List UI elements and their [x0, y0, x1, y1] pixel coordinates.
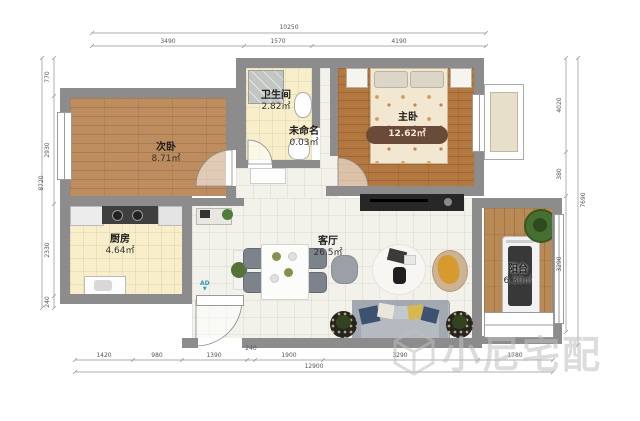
- sink-basin: [94, 280, 112, 291]
- stove[interactable]: [102, 206, 158, 224]
- side-tray: [404, 255, 416, 265]
- balcony-plant-center: [533, 218, 547, 232]
- nightstand-right[interactable]: [450, 68, 472, 88]
- wall-bathroom-bottom-a: [236, 160, 248, 168]
- entry-door-leaf[interactable]: [196, 295, 244, 306]
- bed-runner[interactable]: [366, 126, 448, 144]
- bathroom-door-arc: [248, 140, 272, 164]
- wall-living-right: [472, 198, 482, 348]
- wall-bottom-left-stub: [182, 338, 198, 348]
- washing-machine-top-line: [506, 240, 534, 243]
- wall-master-left: [330, 58, 338, 156]
- master-bedroom-door-arc: [338, 158, 368, 188]
- wall-secondary-right-lower: [226, 186, 236, 198]
- wall-bathroom-right: [312, 58, 320, 128]
- vanity-cabinet[interactable]: [250, 168, 286, 184]
- tv-screen: [370, 199, 428, 202]
- speaker: [444, 198, 452, 206]
- wall-bathroom-bottom-b: [272, 160, 320, 168]
- pouf[interactable]: [331, 255, 358, 284]
- entry-door-arc: [196, 300, 242, 346]
- toilet[interactable]: [288, 138, 310, 160]
- washbasin[interactable]: [294, 92, 312, 118]
- table-plant-1: [272, 252, 281, 261]
- wall-kitchen-bottom: [60, 294, 192, 304]
- bay-window-inner: [490, 92, 518, 152]
- shoe-cabinet-decor: [200, 210, 210, 218]
- table-plant-2: [284, 268, 293, 277]
- wall-secondary-top: [60, 88, 240, 98]
- kitchen-cabinet[interactable]: [158, 206, 184, 226]
- washing-machine-front: [508, 246, 532, 306]
- accent-chair[interactable]: [393, 267, 406, 284]
- balcony-sill-window: [484, 312, 554, 338]
- kitchen-counter[interactable]: [70, 206, 104, 226]
- entry-marker: AD ▼: [200, 281, 210, 292]
- burner-right: [132, 210, 143, 221]
- wall-top: [236, 58, 484, 68]
- burner-left: [112, 210, 123, 221]
- table-plate-2: [288, 252, 297, 261]
- wall-below-secondary: [192, 198, 244, 206]
- pillow-left[interactable]: [374, 71, 408, 88]
- wall-secondary-right-upper: [226, 98, 236, 150]
- wall-secondary-bottom: [60, 196, 192, 206]
- potted-plant-right: [452, 315, 467, 329]
- wall-bottom-main: [242, 338, 474, 348]
- shower[interactable]: [248, 70, 284, 104]
- secondary-bedroom-door-arc: [196, 150, 232, 186]
- balcony-window: [554, 214, 564, 324]
- pillow-right[interactable]: [410, 71, 444, 88]
- table-plate-1: [270, 274, 279, 283]
- sofa-pillow-white: [377, 303, 395, 320]
- wall-balcony-top: [482, 198, 562, 208]
- wall-bathroom-left: [236, 58, 246, 168]
- shoe-cabinet-plant: [222, 209, 233, 220]
- potted-plant-left: [336, 315, 351, 329]
- nightstand-left[interactable]: [346, 68, 368, 88]
- wall-kitchen-right: [182, 198, 192, 298]
- secondary-bedroom-window: [57, 112, 72, 180]
- floorplan-canvas: 次卧 8.71㎡ 卫生间 2.82㎡ 未命名 0.03㎡ 主卧 12.62㎡ 厨…: [0, 0, 640, 421]
- entry-arrow-icon: ▼: [200, 287, 210, 292]
